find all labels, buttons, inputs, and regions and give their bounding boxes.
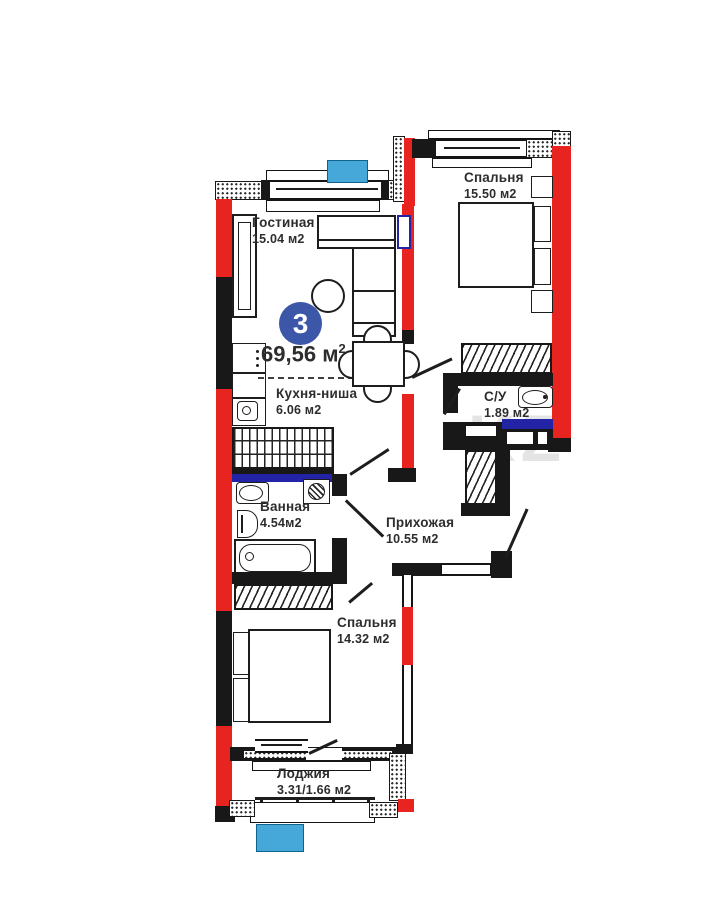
door-threshold (465, 425, 497, 437)
vent-shaft (465, 450, 497, 506)
sofa-cushion-line (319, 239, 394, 241)
wall-segment (461, 503, 510, 516)
wall-hatched (229, 800, 255, 817)
wall-hatched (369, 802, 398, 818)
wall-red-segment (552, 146, 571, 444)
wall-red-segment (398, 799, 414, 812)
room-label-bedroom-1: Спальня 15.50 м2 (464, 170, 524, 202)
door-threshold (441, 564, 491, 575)
wall-hatched (526, 139, 554, 158)
unit-number-badge: 3 (279, 302, 322, 345)
bed (248, 629, 331, 723)
bathtub-drain (245, 552, 254, 561)
sink-tap (543, 395, 547, 399)
dining-table (352, 341, 405, 387)
sofa-cushion-line (354, 322, 394, 324)
door-opening (332, 496, 347, 538)
wall-segment (412, 139, 438, 158)
pillow (233, 632, 249, 675)
window-sill (250, 802, 375, 823)
nightstand (531, 176, 553, 198)
duct-marker (397, 215, 411, 249)
wall-red-segment (402, 607, 413, 665)
kitchen-cabinets (232, 427, 334, 469)
door-swing (349, 448, 389, 475)
total-area-label: 69,56 м2 (261, 341, 346, 367)
wardrobe (461, 343, 552, 374)
cabinet-inner (238, 222, 251, 310)
floor-plan: KZ (0, 0, 725, 900)
wall-red-segment (216, 726, 232, 810)
bed (458, 202, 534, 288)
wall-segment (232, 572, 347, 584)
wall-segment (216, 277, 232, 391)
wall-hatched (552, 131, 571, 147)
counter-divider (232, 397, 266, 399)
room-label-wc: С/У 1.89 м2 (484, 389, 529, 421)
kitchen-sink-drain (242, 406, 251, 415)
window-frame-line (276, 188, 378, 190)
window (268, 180, 386, 200)
toilet-tank-line (241, 515, 243, 533)
room-label-hallway: Прихожая 10.55 м2 (386, 515, 454, 547)
duct-opening (507, 432, 533, 444)
duct-opening (538, 432, 547, 444)
wall-segment (443, 373, 553, 386)
stove-burner (256, 357, 259, 360)
window-frame-line (261, 744, 302, 746)
zone-dashed-line (258, 377, 354, 379)
wall-red-segment (216, 199, 232, 279)
ac-unit-marker (327, 160, 368, 183)
pillow (534, 206, 551, 242)
pillow (233, 678, 249, 722)
wall-red-segment (216, 389, 232, 613)
room-label-kitchen: Кухня-ниша 6.06 м2 (276, 386, 357, 418)
wall-segment (491, 551, 512, 578)
wall-segment (261, 180, 270, 200)
room-label-bathroom: Ванная 4.54м2 (260, 499, 310, 531)
ac-unit-marker (256, 824, 304, 852)
window-sill (432, 158, 532, 168)
sofa (317, 215, 396, 249)
door-swing (345, 499, 384, 537)
window-sill (266, 200, 380, 212)
window-frame-line (444, 147, 520, 149)
window (255, 739, 308, 753)
pillow (534, 248, 551, 285)
wall-red-segment (402, 394, 414, 470)
window-sill (428, 130, 560, 139)
washing-machine-drum (308, 483, 325, 500)
wall-segment (388, 468, 416, 482)
wardrobe (234, 584, 333, 610)
door-swing (348, 582, 373, 603)
room-label-bedroom-2: Спальня 14.32 м2 (337, 615, 397, 647)
room-label-loggia: Лоджия 3.31/1.66 м2 (277, 766, 351, 798)
room-label-living: Гостиная 15.04 м2 (252, 215, 315, 247)
wall-hatched (389, 753, 406, 801)
wall-segment (216, 611, 232, 728)
nightstand (531, 290, 553, 313)
counter-divider (232, 372, 266, 374)
stove-burner (256, 364, 259, 367)
stove-burner (256, 350, 259, 353)
sofa-cushion-line (354, 290, 394, 292)
